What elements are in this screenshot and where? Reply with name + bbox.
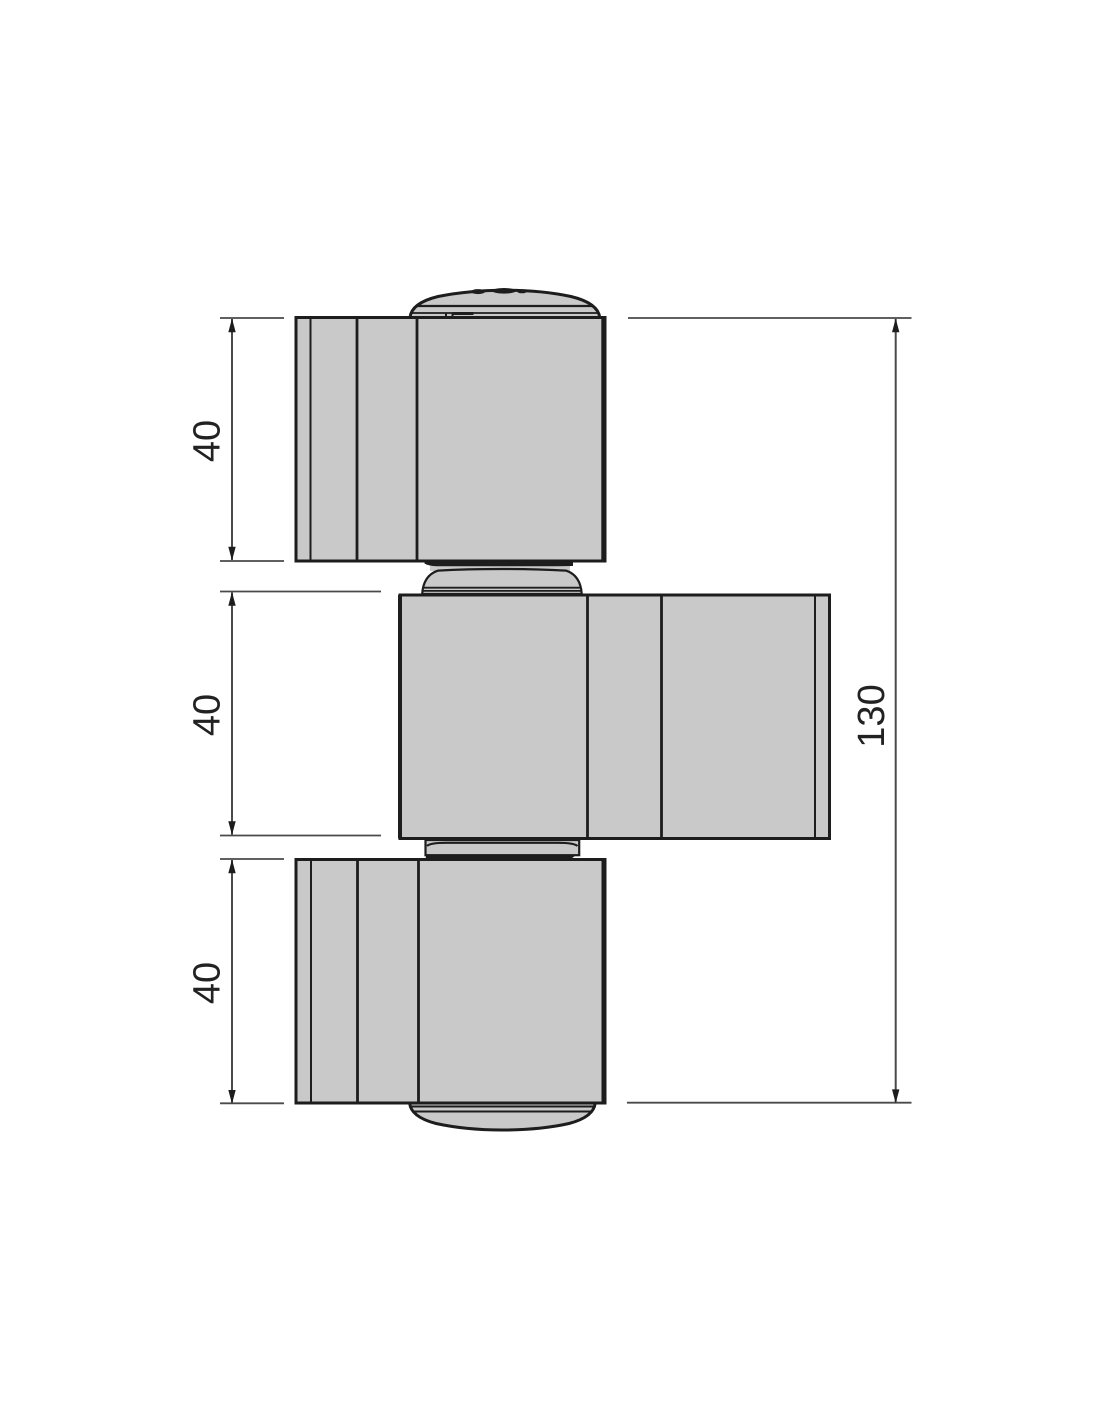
svg-text:40: 40 <box>187 962 229 1004</box>
svg-text:130: 130 <box>851 684 893 747</box>
svg-text:40: 40 <box>187 420 229 462</box>
svg-text:40: 40 <box>187 694 229 736</box>
